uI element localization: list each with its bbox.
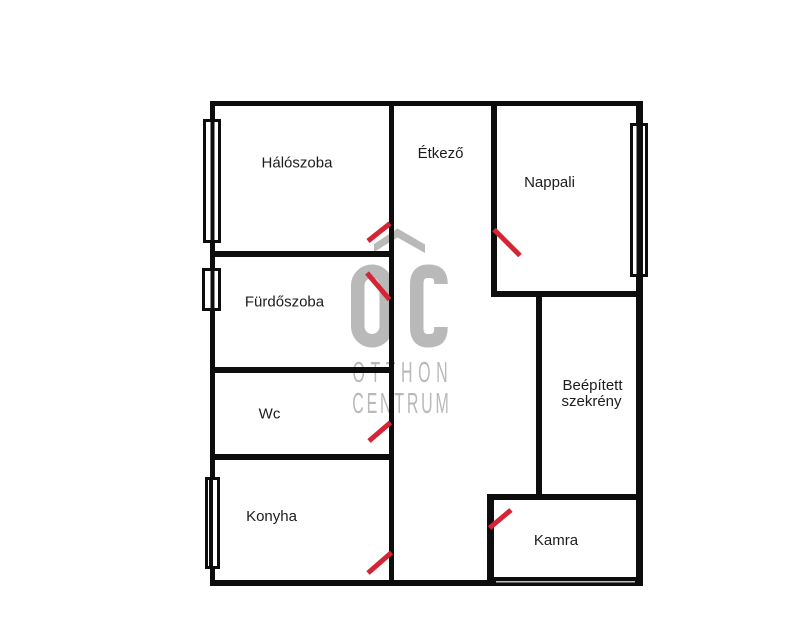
svg-text:CENTRUM: CENTRUM (352, 387, 451, 419)
svg-text:Fürdőszoba: Fürdőszoba (245, 294, 325, 311)
svg-text:Kamra: Kamra (534, 532, 579, 549)
svg-text:szekrény: szekrény (561, 393, 622, 410)
svg-text:Hálószoba: Hálószoba (262, 155, 334, 172)
svg-text:Konyha: Konyha (246, 508, 298, 525)
svg-text:Beépített: Beépített (562, 377, 623, 394)
svg-text:Étkező: Étkező (418, 145, 464, 162)
svg-text:Nappali: Nappali (524, 174, 575, 191)
svg-text:Wc: Wc (259, 406, 281, 423)
